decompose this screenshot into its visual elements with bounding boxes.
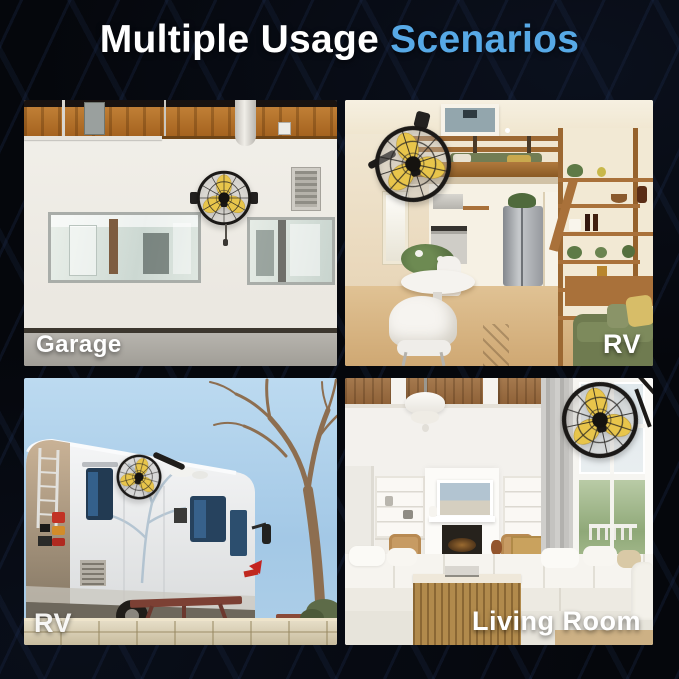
scene-label-rv-interior: RV xyxy=(603,329,641,360)
flower-white xyxy=(415,250,423,257)
fan-chain-bead xyxy=(223,239,228,246)
rv-exterior-illustration xyxy=(24,378,337,645)
mantel-shelf xyxy=(429,516,495,522)
mantel-vase xyxy=(429,506,437,517)
shelf-plant xyxy=(595,247,607,258)
wine-bottle xyxy=(593,214,598,231)
scene-rv-exterior-photo: RV xyxy=(24,378,337,645)
ceiling-beam xyxy=(483,378,498,404)
shelf-plant xyxy=(567,246,582,259)
rv-vent xyxy=(174,508,187,523)
scene-rv-interior-photo: RV xyxy=(345,100,653,366)
conduit-pipe xyxy=(62,100,65,136)
wall-vent xyxy=(292,168,320,210)
fire-glow xyxy=(448,538,476,552)
window-reflection xyxy=(173,223,191,274)
window-reflection xyxy=(109,219,118,274)
scene-garage-photo: Garage xyxy=(24,100,337,366)
tail-light-red xyxy=(52,512,65,523)
shelf-board xyxy=(558,260,640,264)
kitchen-shelf xyxy=(463,206,489,210)
scene-living-room-photo: Living Room xyxy=(345,378,653,645)
shelf-jar xyxy=(637,186,647,203)
scene-label-garage: Garage xyxy=(36,331,122,359)
awning-bar xyxy=(82,462,118,467)
skylight-latch xyxy=(463,110,477,118)
shelf-plant xyxy=(622,245,635,258)
air-duct xyxy=(235,100,256,146)
junction-box xyxy=(278,122,291,135)
wall-fan xyxy=(196,170,252,226)
skylight-window xyxy=(441,104,499,136)
sofa-pillow xyxy=(583,546,617,566)
electrical-panel xyxy=(84,102,105,135)
sofa-pillow xyxy=(349,546,385,566)
refrigerator xyxy=(503,206,543,286)
ceiling-wood xyxy=(345,378,563,404)
builtin-shelf-left xyxy=(375,476,425,538)
title-part-white: Multiple Usage xyxy=(100,18,379,61)
side-mirror xyxy=(262,524,271,544)
water-pipe xyxy=(24,136,162,140)
fan-pull-chain xyxy=(225,224,227,240)
rear-placard xyxy=(40,524,50,532)
framed-picture xyxy=(437,480,493,518)
window-reflection xyxy=(143,233,169,274)
shelf-fruit xyxy=(597,167,606,177)
satellite-dome xyxy=(192,471,208,479)
window-side-trim xyxy=(645,378,653,570)
page-title: Multiple UsageScenarios xyxy=(0,18,679,63)
floor-runner xyxy=(483,324,509,366)
wall-fan-icon xyxy=(196,170,252,226)
poster: Multiple UsageScenarios xyxy=(0,0,679,679)
shelf-bowl xyxy=(611,194,627,203)
license-plate xyxy=(38,536,52,546)
window-reflection xyxy=(290,224,320,276)
chandelier-finial xyxy=(422,424,429,432)
scene-label-living-room: Living Room xyxy=(472,606,641,637)
ceiling-shadow xyxy=(24,100,337,107)
shelf-decor xyxy=(403,510,413,519)
shelf-board xyxy=(558,232,653,236)
scene-label-rv-exterior: RV xyxy=(34,608,72,639)
chandelier xyxy=(411,411,439,424)
sofa-pillow xyxy=(387,548,417,566)
rv-window xyxy=(230,510,247,556)
recessed-light xyxy=(505,128,510,133)
wine-bottle xyxy=(585,214,590,231)
window-reflection xyxy=(278,220,286,282)
window-reflection xyxy=(69,225,97,276)
wine-glasses xyxy=(569,219,581,231)
tail-light-amber xyxy=(52,526,65,535)
office-window xyxy=(48,212,201,283)
window-reflection xyxy=(256,230,274,276)
pillow-yellow xyxy=(625,294,653,327)
ceiling-beam xyxy=(391,378,406,404)
dining-table xyxy=(401,270,475,294)
ceiling-edge xyxy=(345,404,563,408)
plant-on-fridge xyxy=(508,193,536,208)
console-decor xyxy=(597,266,607,276)
refrigerator-seam xyxy=(521,206,523,286)
table-books xyxy=(445,566,479,575)
conduit-pipe xyxy=(164,100,166,136)
rv-window-reflection xyxy=(88,472,98,516)
shelf-plant xyxy=(567,164,583,177)
title-part-accent: Scenarios xyxy=(390,18,579,61)
rv-window-reflection xyxy=(194,500,206,538)
sofa-pillow xyxy=(541,548,579,568)
tail-light-red xyxy=(52,538,65,546)
office-window xyxy=(247,217,335,285)
shelf-decor xyxy=(385,496,393,506)
console-tabletop xyxy=(413,574,521,583)
